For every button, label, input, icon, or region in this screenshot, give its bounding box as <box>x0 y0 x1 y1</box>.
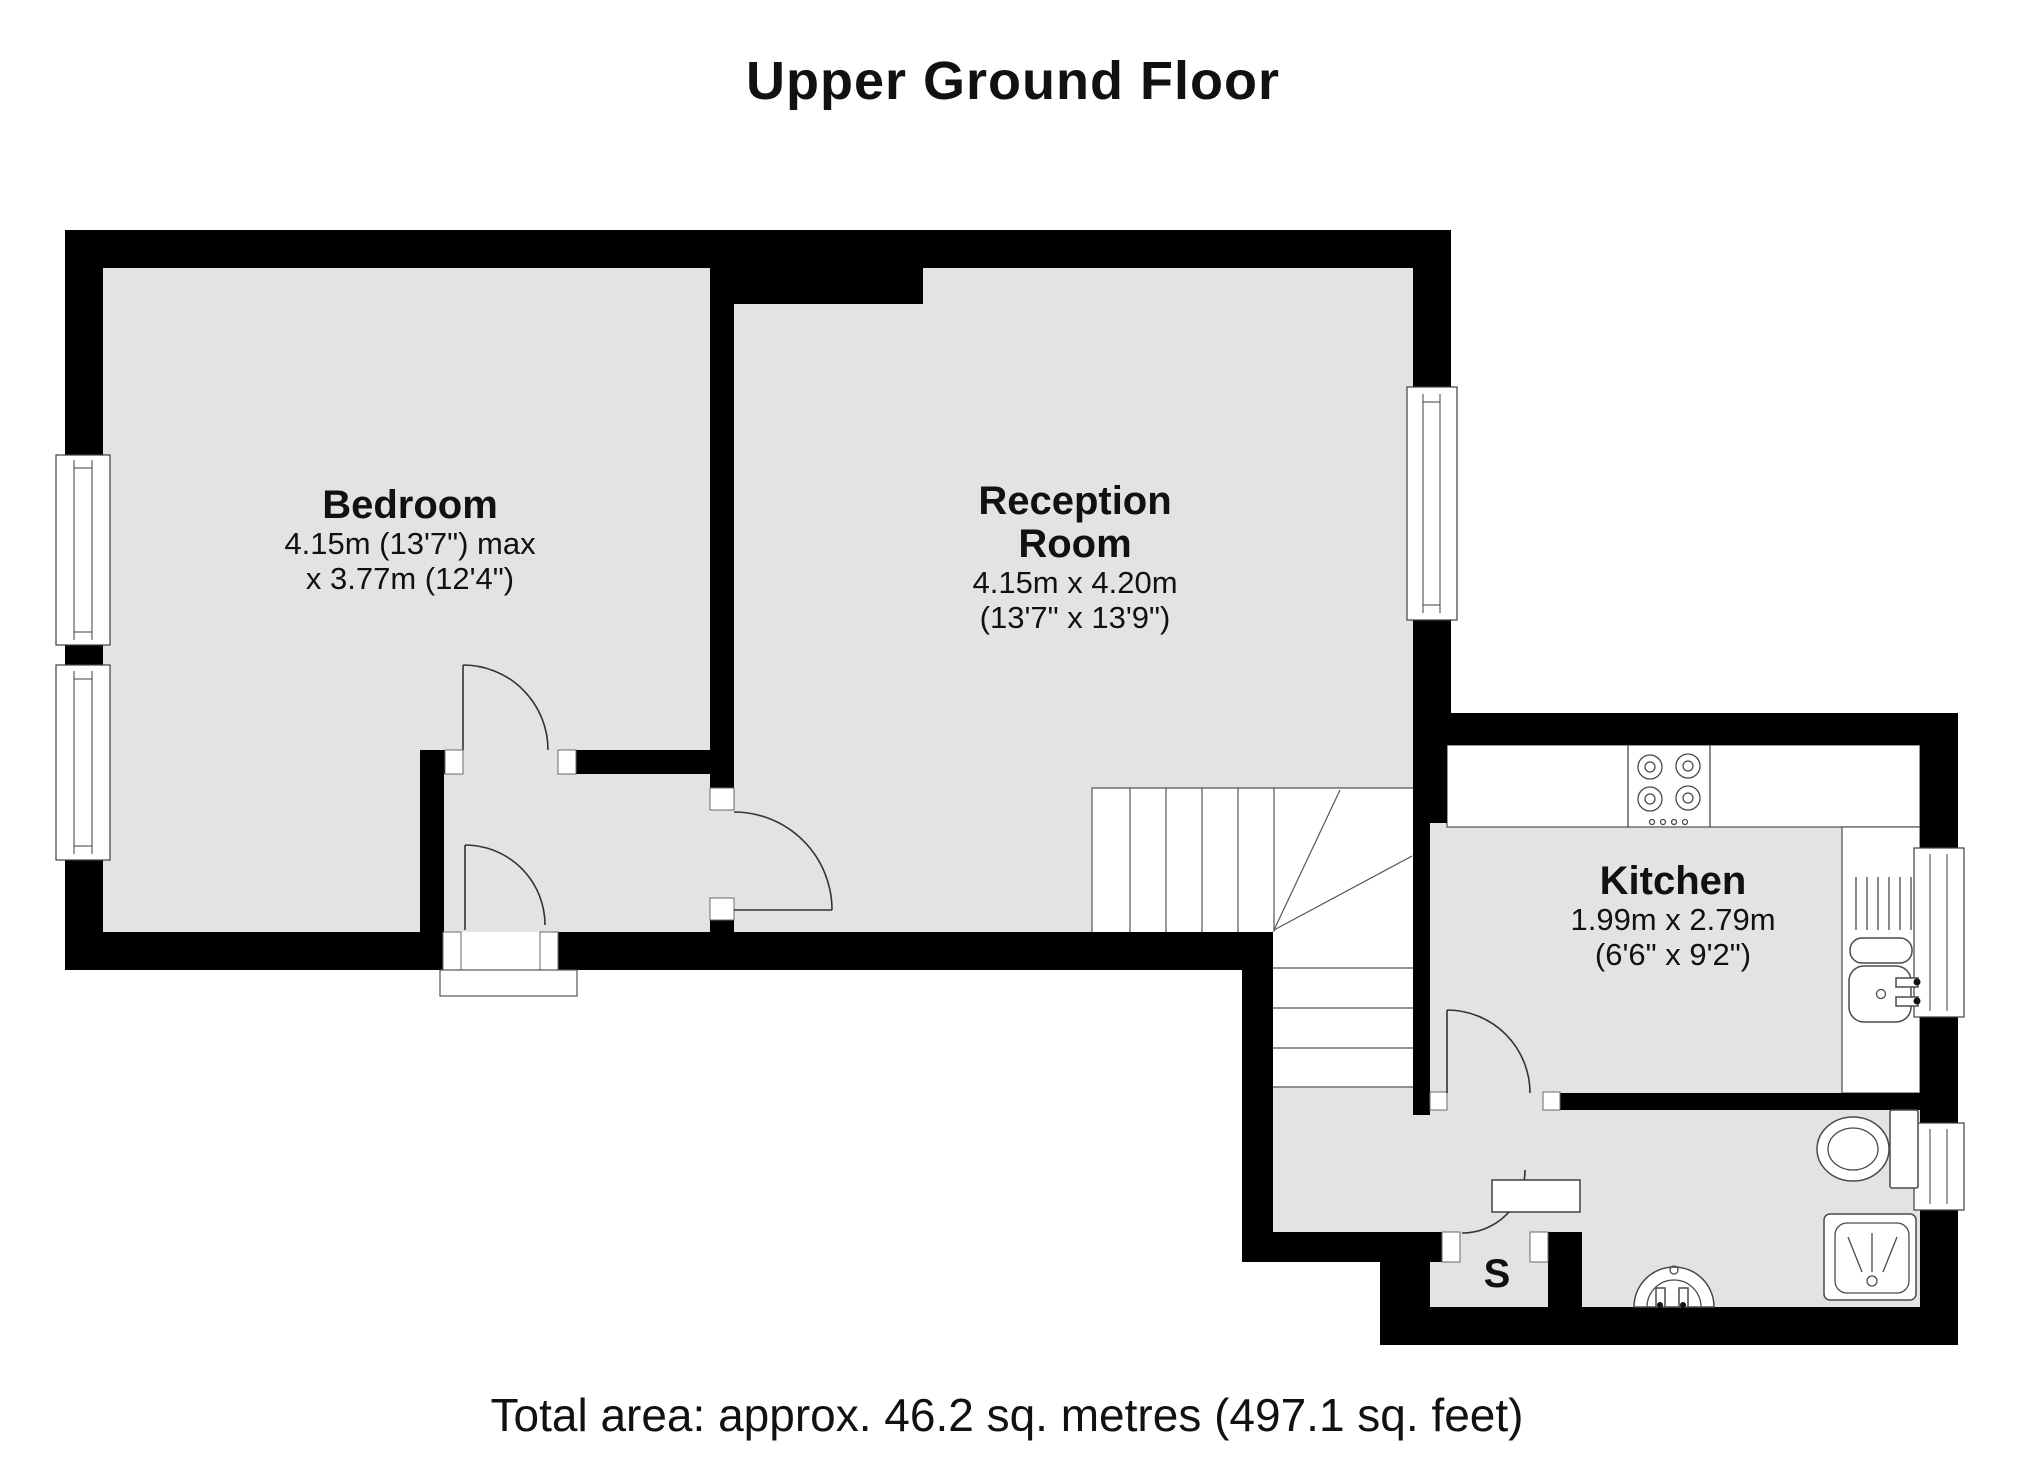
entrance-threshold <box>440 970 577 996</box>
wall-hallway-left <box>420 774 444 932</box>
wall-hallway-top-a <box>420 750 445 774</box>
room-dims: 4.15m x 4.20m <box>925 566 1225 601</box>
wall-kitchen-top <box>1447 713 1958 745</box>
wall-reception-right-lower <box>1413 620 1451 745</box>
jamb <box>558 750 576 774</box>
jamb <box>445 750 463 774</box>
shower-icon <box>1824 1214 1916 1300</box>
room-dims: (6'6" x 9'2") <box>1570 938 1775 973</box>
reception-door-gap <box>710 810 734 898</box>
passage-floor <box>1413 1115 1430 1232</box>
page-title: Upper Ground Floor <box>746 50 1280 112</box>
jamb <box>540 932 558 970</box>
kitchen-door-gap <box>1447 1093 1543 1110</box>
room-label-kitchen: Kitchen 1.99m x 2.79m (6'6" x 9'2") <box>1570 860 1775 973</box>
kitchen-counter-top <box>1447 745 1920 827</box>
bedroom-window-lower <box>56 665 110 860</box>
room-name: Reception Room <box>925 480 1225 566</box>
wall-top <box>65 230 1451 268</box>
wall-hallway-top-b <box>576 750 710 774</box>
jamb <box>710 788 734 810</box>
wall-left-lower <box>65 860 103 932</box>
wall-right-upper <box>1920 713 1958 848</box>
stairs-lower-run <box>1273 932 1413 1087</box>
room-name: Bedroom <box>284 484 535 527</box>
room-dims: x 3.77m (12'4") <box>284 562 535 597</box>
bedroom-window-upper <box>56 455 110 645</box>
room-dims: 4.15m (13'7") max <box>284 527 535 562</box>
bathroom-window <box>1914 1123 1964 1210</box>
jamb <box>710 898 734 920</box>
wall-stairwell-kitchen-a <box>1413 745 1447 823</box>
jamb <box>1430 1092 1447 1110</box>
jamb <box>443 932 461 970</box>
reception-window <box>1407 387 1457 620</box>
wall-right-mid <box>1920 1017 1958 1123</box>
jamb <box>1543 1092 1560 1110</box>
bedroom-floor <box>103 268 710 932</box>
room-dims: (13'7" x 13'9") <box>925 601 1225 636</box>
floorplan-drawing <box>0 0 2025 1473</box>
room-label-reception: Reception Room 4.15m x 4.20m (13'7" x 13… <box>925 480 1225 636</box>
room-dims: 1.99m x 2.79m <box>1570 903 1775 938</box>
floorplan-page: Upper Ground Floor Bedroom 4.15m (13'7")… <box>0 0 2025 1473</box>
wall-bottom-left <box>65 932 443 970</box>
wall-bath-bottom <box>1380 1307 1958 1345</box>
room-label-storage: S <box>1484 1252 1511 1297</box>
wall-bottom-right <box>558 932 1242 970</box>
kitchen-window <box>1914 848 1964 1017</box>
storage-door-leaf <box>1492 1180 1580 1212</box>
wall-left-mid <box>65 645 103 665</box>
jamb <box>1442 1232 1460 1262</box>
stairs-upper-run <box>1092 788 1413 932</box>
wall-stairwell-left <box>1242 932 1273 1262</box>
wall-divider-bedroom-reception <box>710 268 734 788</box>
wall-left-upper <box>65 268 103 455</box>
wall-divider-stub <box>710 920 734 932</box>
room-name: Kitchen <box>1570 860 1775 903</box>
wall-top-jog <box>710 268 923 304</box>
jamb <box>1530 1232 1548 1262</box>
wall-reception-right-upper <box>1413 268 1451 387</box>
wall-stairwell-kitchen-b <box>1413 823 1430 1115</box>
total-area-text: Total area: approx. 46.2 sq. metres (497… <box>490 1388 1523 1442</box>
wall-kitchen-bottom <box>1560 1093 1920 1110</box>
room-label-bedroom: Bedroom 4.15m (13'7") max x 3.77m (12'4"… <box>284 484 535 597</box>
